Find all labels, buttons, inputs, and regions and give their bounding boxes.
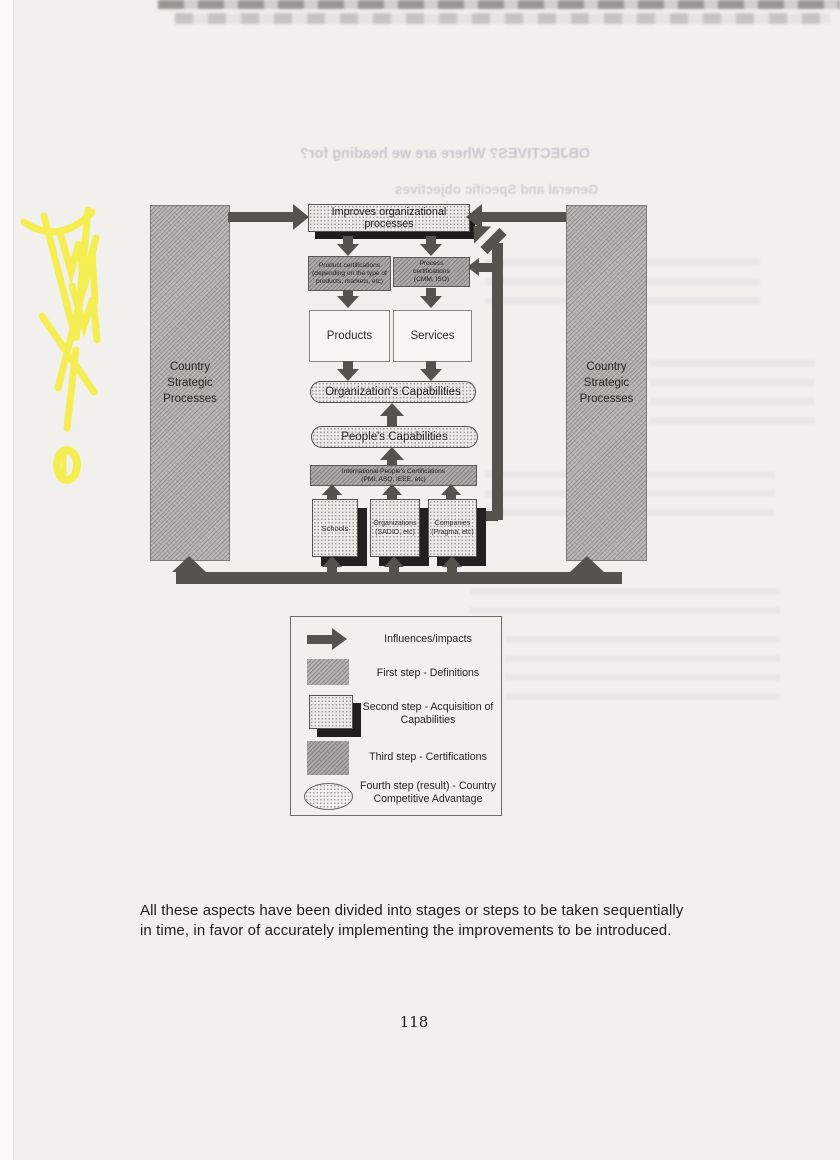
organizations-line1: Organizations [373, 519, 416, 528]
arrow-stem [387, 415, 397, 426]
arrow-up [322, 556, 342, 567]
feedback-line-vertical [492, 243, 503, 520]
companies-box: Companies (Pragma, etc) [428, 499, 477, 557]
organization-capabilities-pill: Organization's Capabilities [310, 381, 476, 403]
arrow-down [420, 244, 442, 256]
international-certifications-label: International People's Certifications (P… [319, 468, 469, 484]
arrow-up-right-column [570, 556, 604, 572]
legend-first-step-label: First step - Definitions [359, 667, 497, 680]
arrow-stem [389, 566, 399, 573]
arrow-up [442, 556, 462, 567]
arrow-up-left-column [172, 556, 206, 572]
international-certifications-bar: International People's Certifications (P… [310, 465, 477, 486]
organizations-label: Organizations (SADIO, etc) [373, 519, 416, 537]
improves-processes-label: Improves organizational processes [309, 206, 469, 230]
yellow-highlighter-scribble [14, 200, 114, 495]
country-strategic-processes-right: Country Strategic Processes [566, 205, 647, 561]
legend-first-step-swatch [307, 659, 349, 685]
left-column-label: Country Strategic Processes [158, 359, 222, 407]
influence-arrow-left [228, 212, 294, 222]
scan-smudge-top [158, 0, 840, 9]
bleed-through-subheading: General and Specific objectives [395, 182, 598, 197]
arrow-stem [327, 566, 337, 573]
arrow-down [420, 369, 442, 381]
product-certifications-label: Product certifications (depending on the… [312, 262, 388, 286]
influence-arrow-right [482, 212, 566, 222]
legend-arrow-bar [307, 635, 332, 644]
feedback-branch-cert [478, 263, 494, 272]
legend-fourth-step-label: Fourth step (result) - Country Competiti… [353, 780, 503, 805]
arrow-down [337, 244, 359, 256]
legend-second-step-label: Second step - Acquisition of Capabilitie… [359, 701, 497, 726]
scanned-document-page: OBJECTIVES? Where are we heading for? Ge… [0, 0, 840, 1160]
bottom-feedback-bar [176, 572, 622, 584]
schools-box: Schools [312, 499, 358, 557]
influence-arrowhead-left [293, 204, 309, 230]
bleed-through-texture [650, 352, 815, 424]
improves-processes-box: Improves organizational processes [308, 204, 470, 232]
intl-cert-line1: International People's Certifications [319, 468, 469, 476]
legend-box: Influences/impacts First step - Definiti… [290, 616, 502, 816]
arrow-down [337, 369, 359, 381]
intl-cert-line2: (PMI, ASQ, IEEE, etc) [319, 476, 469, 484]
organizations-box: Organizations (SADIO, etc) [370, 499, 420, 557]
bleed-through-heading: OBJECTIVES? Where are we heading for? [300, 146, 590, 162]
arrow-stem [447, 566, 457, 573]
services-box: Services [393, 310, 472, 362]
product-certifications-box: Product certifications (depending on the… [308, 256, 391, 291]
legend-fourth-step-swatch [304, 783, 353, 810]
products-label: Products [327, 330, 372, 342]
organization-capabilities-label: Organization's Capabilities [325, 386, 461, 398]
legend-third-step-label: Third step - Certifications [359, 751, 497, 764]
right-column-label: Country Strategic Processes [575, 359, 639, 407]
companies-line1: Companies [431, 519, 473, 528]
arrow-down [337, 296, 359, 308]
body-paragraph: All these aspects have been divided into… [140, 901, 698, 940]
process-certifications-label: Process certifications (CMM, ISO) [403, 260, 461, 284]
legend-third-step-swatch [307, 741, 349, 775]
organizations-line2: (SADIO, etc) [373, 528, 416, 537]
people-capabilities-pill: People's Capabilities [311, 426, 478, 448]
page-number: 118 [0, 1013, 828, 1031]
arrow-down [420, 296, 442, 308]
scan-smudge-top-2 [175, 13, 830, 24]
arrow-up [384, 556, 404, 567]
products-box: Products [309, 310, 390, 362]
companies-label: Companies (Pragma, etc) [431, 519, 473, 537]
bleed-through-texture [505, 628, 780, 700]
schools-label: Schools [322, 524, 349, 533]
legend-arrow-icon [332, 628, 347, 650]
people-capabilities-label: People's Capabilities [341, 431, 447, 443]
legend-influences-label: Influences/impacts [359, 633, 497, 646]
companies-line2: (Pragma, etc) [431, 528, 473, 537]
services-label: Services [410, 330, 454, 342]
legend-second-step-swatch [309, 695, 353, 729]
country-strategic-processes-left: Country Strategic Processes [150, 205, 230, 561]
process-certifications-box: Process certifications (CMM, ISO) [393, 257, 470, 287]
